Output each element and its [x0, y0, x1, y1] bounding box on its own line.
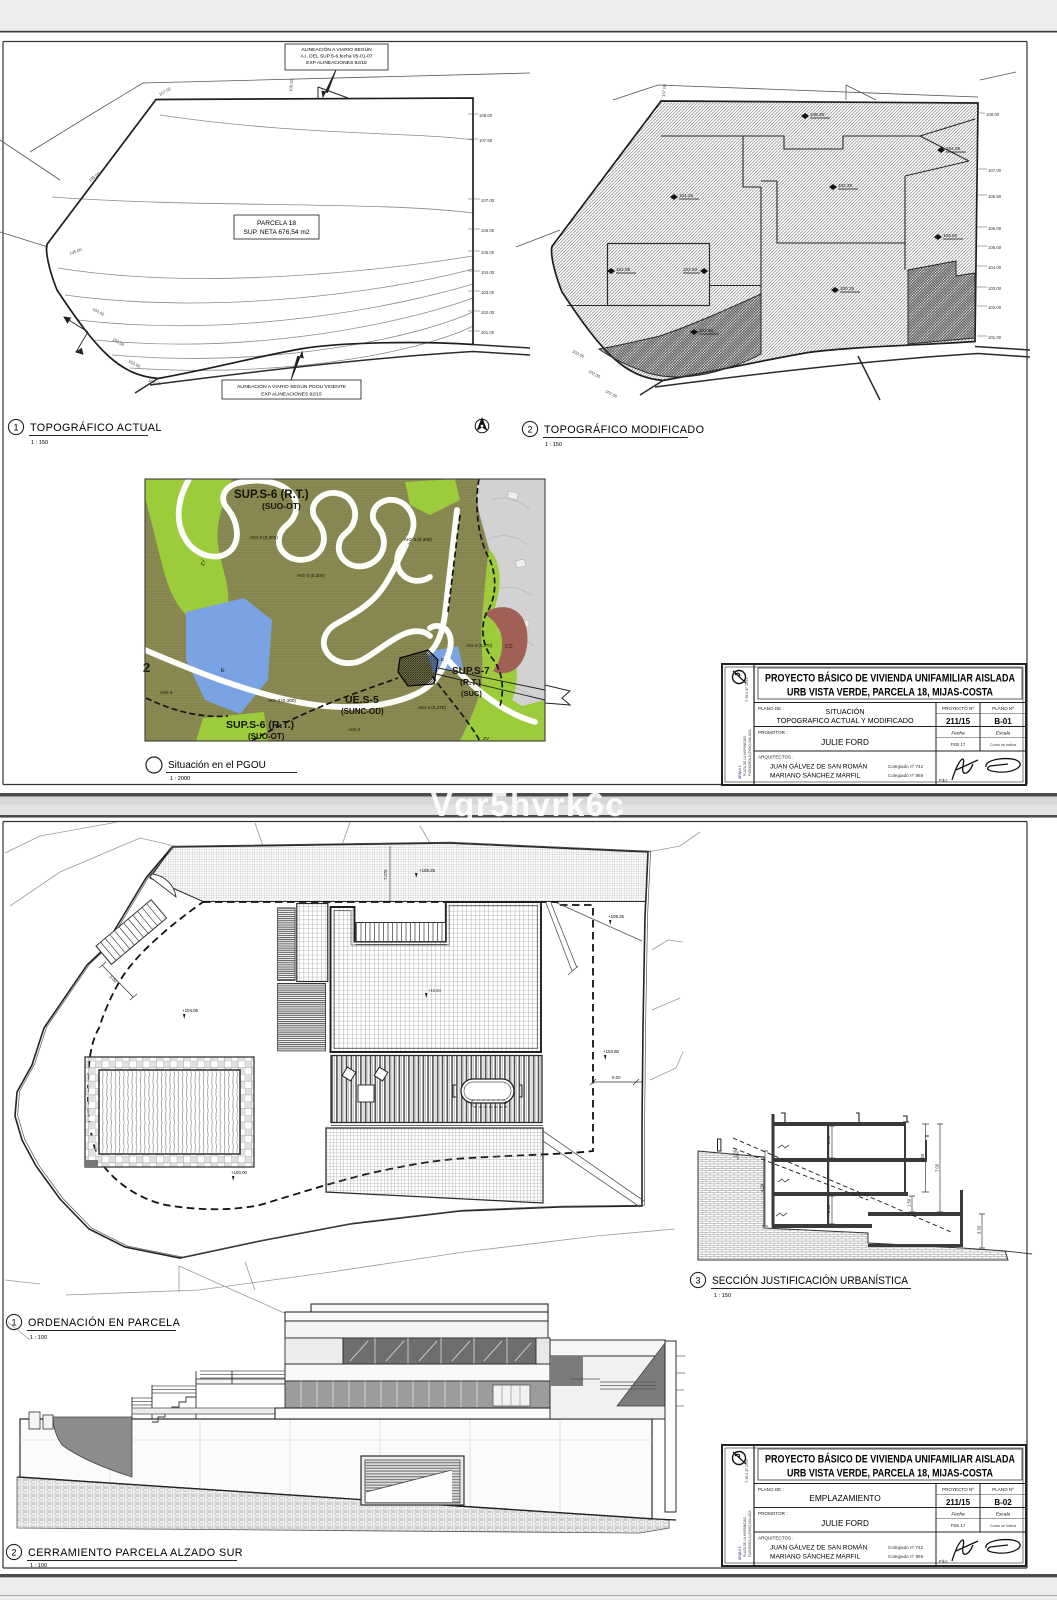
svg-text:106.50: 106.50 — [288, 78, 294, 92]
svg-text:106.00: 106.00 — [481, 228, 495, 233]
svg-text:101.00: 101.00 — [481, 330, 495, 335]
svg-text:(SUO-OT): (SUO-OT) — [248, 732, 285, 741]
svg-text:AIG-3 (0,300): AIG-3 (0,300) — [250, 535, 278, 540]
svg-text:1 : 100: 1 : 100 — [30, 1335, 47, 1341]
svg-text:Fdo:: Fdo: — [939, 778, 948, 783]
svg-text:Escala: Escala — [996, 1512, 1011, 1518]
svg-text:105.00: 105.00 — [69, 247, 83, 256]
svg-text:PLANO Nº: PLANO Nº — [992, 706, 1014, 711]
svg-text:PROMOTOR :: PROMOTOR : — [758, 1511, 788, 1516]
svg-text:Colegiado nº 742: Colegiado nº 742 — [888, 764, 924, 769]
svg-text:1.50: 1.50 — [733, 1149, 738, 1158]
svg-text:104.00: 104.00 — [92, 306, 106, 317]
svg-text:2.50: 2.50 — [826, 1135, 831, 1144]
svg-text:B-02: B-02 — [994, 1498, 1012, 1507]
svg-text:ARQUITECTOS :: ARQUITECTOS : — [758, 755, 794, 760]
svg-text:104.25: 104.25 — [946, 146, 960, 151]
svg-text:4.34: 4.34 — [760, 1183, 765, 1192]
svg-text:106.50: 106.50 — [988, 194, 1002, 199]
svg-text:FUENGIROLA (29640) MALAGA: FUENGIROLA (29640) MALAGA — [748, 1510, 752, 1557]
svg-text:PLAZA DE LA HISPANIDAD: PLAZA DE LA HISPANIDAD — [743, 1516, 747, 1557]
svg-text:7.075: 7.075 — [383, 869, 388, 880]
svg-text:TOPOGRÁFICO MODIFICADO: TOPOGRÁFICO MODIFICADO — [544, 423, 704, 436]
svg-text:JUAN GÁLVEZ DE SAN ROMÁN: JUAN GÁLVEZ DE SAN ROMÁN — [770, 762, 868, 771]
svg-text:1: 1 — [13, 423, 18, 433]
svg-text:JUAN GÁLVEZ DE SAN ROMÁN: JUAN GÁLVEZ DE SAN ROMÁN — [770, 1543, 868, 1552]
svg-text:EXP ALINEACIONES 92/15: EXP ALINEACIONES 92/15 — [261, 392, 322, 398]
svg-text:107.00: 107.00 — [481, 198, 495, 203]
svg-text:CO: CO — [505, 644, 513, 650]
svg-text:3: 3 — [695, 1276, 700, 1286]
svg-text:+108.25: +108.25 — [419, 868, 436, 873]
svg-text:103.00: 103.00 — [572, 348, 586, 359]
svg-text:104.00: 104.00 — [988, 265, 1002, 270]
svg-text:2: 2 — [527, 425, 532, 435]
svg-text:SUP.S-6 (R.T.): SUP.S-6 (R.T.) — [234, 489, 309, 501]
svg-text:PROYECTO BÁSICO DE VIVIENDA UN: PROYECTO BÁSICO DE VIVIENDA UNIFAMILIAR … — [765, 1453, 1015, 1466]
svg-text:1 : 150: 1 : 150 — [31, 440, 48, 446]
svg-text:+10.84: +10.84 — [428, 988, 442, 993]
svg-text:107.00: 107.00 — [661, 83, 667, 97]
svg-text:Colegiado nº 742: Colegiado nº 742 — [888, 1545, 924, 1550]
svg-text:AIG-4 (0,270): AIG-4 (0,270) — [466, 643, 493, 648]
svg-text:PROYECTO Nº: PROYECTO Nº — [942, 1487, 974, 1492]
svg-text:E: E — [441, 657, 444, 663]
svg-text:PLANO DE :: PLANO DE : — [758, 706, 784, 711]
svg-text:PROYECTO Nº: PROYECTO Nº — [942, 706, 974, 711]
svg-text:Fecha: Fecha — [951, 731, 965, 737]
svg-text:Escala: Escala — [996, 731, 1011, 737]
svg-text:PROYECTO BÁSICO DE VIVIENDA UN: PROYECTO BÁSICO DE VIVIENDA UNIFAMILIAR … — [765, 672, 1015, 685]
svg-text:101.00: 101.00 — [988, 335, 1002, 340]
svg-text:CERRAMIENTO PARCELA ALZADO SUR: CERRAMIENTO PARCELA ALZADO SUR — [28, 1547, 243, 1559]
svg-text:3.00: 3.00 — [108, 974, 118, 984]
svg-text:107.00: 107.00 — [988, 168, 1002, 173]
svg-text:TOPOGRAFICO ACTUAL Y MODIFICAD: TOPOGRAFICO ACTUAL Y MODIFICADO — [776, 716, 914, 725]
svg-text:105.00: 105.00 — [481, 250, 495, 255]
svg-text:PLAZA DE LA HISPANIDAD: PLAZA DE LA HISPANIDAD — [743, 735, 747, 776]
svg-text:103.50: 103.50 — [112, 337, 126, 348]
svg-text:3.33: 3.33 — [977, 1225, 982, 1234]
svg-text:211/15: 211/15 — [946, 717, 971, 726]
svg-text:MARIANO SÁNCHEZ MARFIL: MARIANO SÁNCHEZ MARFIL — [770, 771, 860, 780]
svg-text:AIG-3 (0,300): AIG-3 (0,300) — [268, 698, 296, 703]
svg-text:PROMOTOR :: PROMOTOR : — [758, 730, 788, 735]
svg-text:102.05: 102.05 — [616, 267, 630, 272]
svg-text:100.25: 100.25 — [840, 286, 854, 291]
svg-text:E: E — [221, 668, 225, 674]
svg-text:SITUACIÓN: SITUACIÓN — [825, 707, 864, 716]
svg-text:108.00: 108.00 — [479, 113, 493, 118]
svg-text:Vqr5hvrk6c: Vqr5hvrk6c — [431, 786, 626, 823]
svg-text:Como se indica: Como se indica — [990, 1524, 1017, 1528]
svg-text:102.94: 102.94 — [683, 267, 697, 272]
svg-text:Como se indica: Como se indica — [990, 743, 1017, 747]
svg-text:ARQUITECTOS :: ARQUITECTOS : — [758, 1536, 794, 1541]
svg-text:103.50: 103.50 — [943, 233, 957, 238]
svg-text:MARIANO SÁNCHEZ MARFIL: MARIANO SÁNCHEZ MARFIL — [770, 1552, 860, 1561]
svg-text:1.50: 1.50 — [907, 1198, 912, 1207]
svg-text:Fdo:: Fdo: — [939, 1559, 948, 1564]
svg-text:101.00: 101.00 — [605, 388, 619, 399]
svg-text:103.00: 103.00 — [481, 290, 495, 295]
svg-text:URB VISTA VERDE, PARCELA 18, M: URB VISTA VERDE, PARCELA 18, MIJAS-COSTA — [787, 687, 993, 699]
svg-text:(SUNC-OD): (SUNC-OD) — [341, 707, 384, 716]
svg-text:2: 2 — [11, 1548, 16, 1558]
svg-text:TOPOGRÁFICO ACTUAL: TOPOGRÁFICO ACTUAL — [30, 421, 162, 434]
svg-text:108.00: 108.00 — [986, 112, 1000, 117]
svg-text:104.00: 104.00 — [481, 270, 495, 275]
svg-text:2.50: 2.50 — [826, 1204, 831, 1213]
svg-text:PLANO DE :: PLANO DE : — [758, 1487, 784, 1492]
svg-text:1 : 2000: 1 : 2000 — [170, 776, 190, 782]
svg-text:EMPLAZAMIENTO: EMPLAZAMIENTO — [809, 1493, 881, 1503]
svg-text:AIG-3 (0,300): AIG-3 (0,300) — [404, 537, 432, 542]
svg-text:SUP.S-7: SUP.S-7 — [452, 666, 490, 677]
svg-text:2: 2 — [143, 660, 150, 675]
svg-text:PARCELA 18: PARCELA 18 — [257, 220, 296, 227]
svg-text:FUENGIROLA (29640) MALAGA: FUENGIROLA (29640) MALAGA — [748, 729, 752, 776]
svg-text:Fecha: Fecha — [951, 1512, 965, 1518]
svg-text:102.25: 102.25 — [838, 183, 852, 188]
svg-text:102.00: 102.00 — [988, 305, 1002, 310]
svg-text:Colegiado nº 869: Colegiado nº 869 — [888, 773, 924, 778]
svg-text:T. 95 2 47 23 61: T. 95 2 47 23 61 — [745, 678, 749, 702]
svg-text:107.00: 107.00 — [158, 86, 172, 97]
svg-text:FEB 17: FEB 17 — [951, 1523, 966, 1528]
svg-text:ARQUI 3: ARQUI 3 — [738, 1546, 742, 1560]
svg-text:106.25: 106.25 — [810, 112, 824, 117]
svg-text:103.00: 103.00 — [988, 286, 1002, 291]
svg-text:A.I. DEL SUP.S-6 fecha 05-01-0: A.I. DEL SUP.S-6 fecha 05-01-07 — [300, 54, 372, 60]
svg-text:B-01: B-01 — [994, 717, 1012, 726]
svg-text:EXP ALINEACIONES 92/15: EXP ALINEACIONES 92/15 — [306, 60, 367, 66]
svg-text:SUP.S-6 (R.T.): SUP.S-6 (R.T.) — [226, 719, 294, 731]
svg-text:JULIE FORD: JULIE FORD — [821, 1519, 869, 1528]
svg-text:T. 95 2 47 23 61: T. 95 2 47 23 61 — [745, 1459, 749, 1483]
svg-text:+103.60: +103.60 — [603, 1049, 620, 1054]
svg-text:FEB 17: FEB 17 — [951, 742, 966, 747]
svg-text:105.00: 105.00 — [988, 245, 1002, 250]
svg-text:ORDENACIÓN EN PARCELA: ORDENACIÓN EN PARCELA — [28, 1316, 181, 1329]
svg-text:Colegiado nº 869: Colegiado nº 869 — [888, 1554, 924, 1559]
svg-text:103.00: 103.00 — [128, 358, 142, 369]
svg-text:(SUC): (SUC) — [461, 689, 482, 698]
svg-text:PLANO Nº: PLANO Nº — [992, 1487, 1014, 1492]
svg-text:106.00: 106.00 — [988, 226, 1002, 231]
svg-text:UE.S-5: UE.S-5 — [345, 694, 379, 706]
svg-text:1: 1 — [11, 1318, 16, 1328]
svg-text:1 : 150: 1 : 150 — [714, 1293, 731, 1299]
svg-text:9.00: 9.00 — [612, 1075, 621, 1080]
svg-text:AIG-3 (0,300): AIG-3 (0,300) — [297, 573, 325, 578]
svg-text:AIG-4 (0,270): AIG-4 (0,270) — [418, 705, 446, 710]
svg-text:AIG-4: AIG-4 — [348, 727, 360, 732]
svg-text:ALINEACIÓN A VIARIO SEGÚN PGOU: ALINEACIÓN A VIARIO SEGÚN PGOU VIGENTE — [237, 383, 347, 390]
svg-text:211/15: 211/15 — [946, 1498, 971, 1507]
svg-text:103.50: 103.50 — [699, 328, 713, 333]
svg-text:1 : 150: 1 : 150 — [545, 442, 562, 448]
svg-text:+108.25: +108.25 — [608, 914, 625, 919]
svg-text:104.25: 104.25 — [679, 193, 693, 198]
svg-text:URB VISTA VERDE, PARCELA 18, M: URB VISTA VERDE, PARCELA 18, MIJAS-COSTA — [787, 1468, 993, 1480]
svg-text:AIG-4: AIG-4 — [160, 690, 173, 696]
svg-text:(SUO-OT): (SUO-OT) — [262, 501, 301, 511]
svg-text:5.50: 5.50 — [920, 1153, 925, 1162]
svg-text:+100.00: +100.00 — [231, 1170, 248, 1175]
svg-text:102.00: 102.00 — [588, 369, 602, 380]
svg-text:SECCIÓN JUSTIFICACIÓN URBANÍST: SECCIÓN JUSTIFICACIÓN URBANÍSTICA — [712, 1274, 909, 1287]
svg-text:ARQUI 3: ARQUI 3 — [738, 765, 742, 779]
svg-text:(R.T.): (R.T.) — [460, 677, 481, 687]
svg-text:102.00: 102.00 — [481, 310, 495, 315]
svg-text:ALINEACIÓN A VIARIO SEGÚN: ALINEACIÓN A VIARIO SEGÚN — [301, 46, 372, 53]
svg-text:JULIE FORD: JULIE FORD — [821, 738, 869, 747]
svg-text:+104.05: +104.05 — [182, 1008, 199, 1013]
svg-text:1 : 100: 1 : 100 — [30, 1563, 47, 1569]
svg-text:SUP. NETA 676,54 m2: SUP. NETA 676,54 m2 — [243, 229, 309, 236]
svg-text:7.00: 7.00 — [935, 1163, 940, 1172]
svg-text:Situación en el PGOU: Situación en el PGOU — [168, 760, 266, 771]
svg-text:107.50: 107.50 — [479, 138, 493, 143]
